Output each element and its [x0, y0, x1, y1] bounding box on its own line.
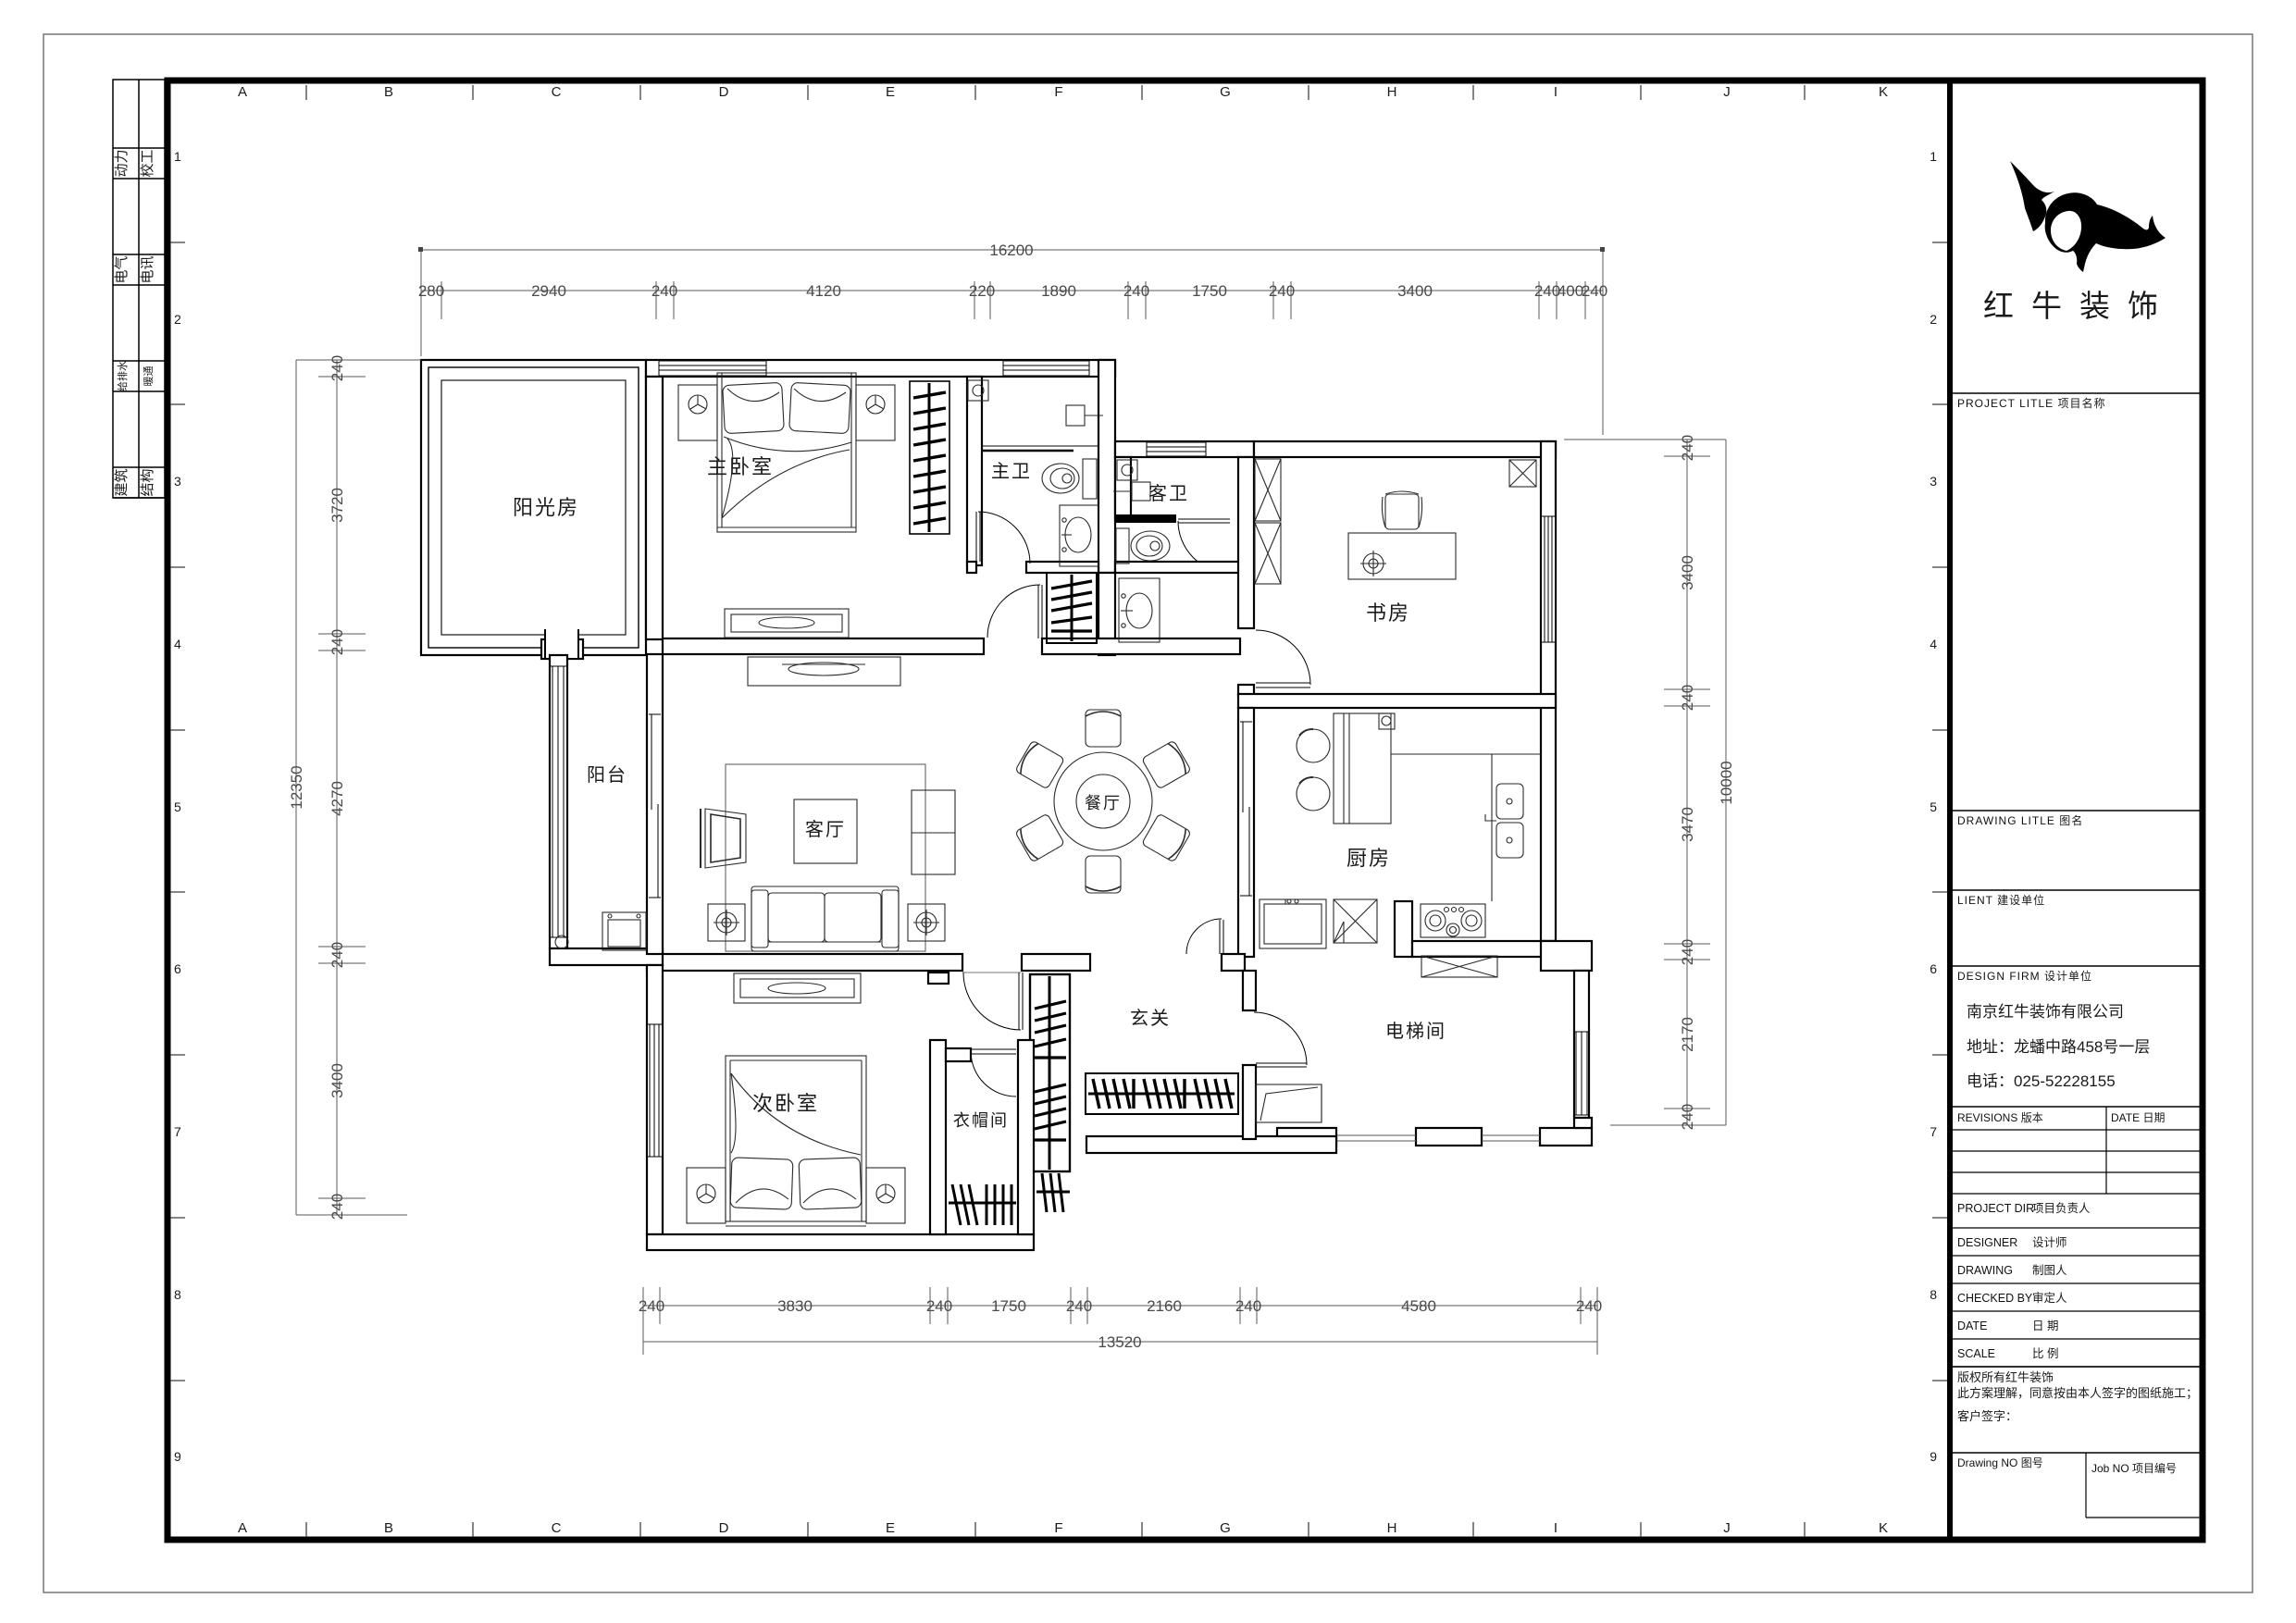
svg-text:240: 240 — [1123, 282, 1149, 300]
svg-text:客卫: 客卫 — [1148, 483, 1189, 504]
svg-text:REVISIONS 版本: REVISIONS 版本 — [1957, 1111, 2043, 1124]
svg-text:3400: 3400 — [329, 1063, 346, 1098]
svg-text:9: 9 — [174, 1449, 181, 1464]
svg-text:阳光房: 阳光房 — [513, 496, 579, 519]
svg-text:I: I — [1554, 84, 1558, 100]
svg-text:校工: 校工 — [140, 149, 155, 177]
svg-text:建筑: 建筑 — [114, 468, 130, 496]
svg-text:2170: 2170 — [1679, 1017, 1696, 1052]
svg-text:主卫: 主卫 — [991, 461, 1032, 482]
svg-text:3830: 3830 — [777, 1297, 813, 1315]
svg-text:DESIGN FIRM 设计单位: DESIGN FIRM 设计单位 — [1957, 969, 2092, 983]
svg-text:C: C — [552, 1520, 562, 1536]
svg-text:D: D — [719, 84, 729, 100]
svg-text:3: 3 — [174, 474, 181, 489]
svg-text:DRAWING LITLE 图名: DRAWING LITLE 图名 — [1957, 813, 2083, 827]
svg-text:240: 240 — [1066, 1297, 1092, 1315]
svg-text:LIENT 建设单位: LIENT 建设单位 — [1957, 893, 2045, 907]
svg-text:阳台: 阳台 — [587, 764, 627, 786]
svg-text:8: 8 — [174, 1287, 181, 1302]
svg-text:9: 9 — [1930, 1449, 1937, 1464]
svg-text:A: A — [238, 1520, 247, 1536]
svg-text:4120: 4120 — [806, 282, 841, 300]
svg-text:H: H — [1387, 84, 1397, 100]
svg-text:此方案理解，同意按由本人签字的图纸施工；: 此方案理解，同意按由本人签字的图纸施工； — [1957, 1386, 2198, 1401]
svg-text:4: 4 — [174, 637, 181, 651]
svg-text:240: 240 — [1679, 435, 1696, 461]
svg-text:G: G — [1220, 1520, 1231, 1536]
svg-text:240: 240 — [926, 1297, 952, 1315]
svg-text:1890: 1890 — [1041, 282, 1076, 300]
svg-text:暖通: 暖通 — [143, 366, 155, 387]
svg-text:CHECKED BY: CHECKED BY — [1957, 1292, 2033, 1305]
svg-text:Drawing NO 图号: Drawing NO 图号 — [1957, 1456, 2043, 1469]
svg-text:设计师: 设计师 — [2032, 1235, 2067, 1249]
svg-text:240: 240 — [1679, 1104, 1696, 1130]
svg-text:客厅: 客厅 — [805, 819, 846, 840]
svg-text:餐厅: 餐厅 — [1085, 794, 1122, 812]
svg-text:240: 240 — [1576, 1297, 1602, 1315]
svg-text:制图人: 制图人 — [2032, 1264, 2067, 1277]
svg-text:5: 5 — [1930, 799, 1937, 814]
svg-text:B: B — [384, 84, 393, 100]
svg-text:电话：025-52228155: 电话：025-52228155 — [1967, 1072, 2116, 1090]
svg-text:结构: 结构 — [140, 468, 155, 496]
svg-text:给排水: 给排水 — [116, 361, 129, 391]
svg-text:240: 240 — [1679, 685, 1696, 711]
svg-text:240: 240 — [1582, 282, 1607, 300]
svg-text:3470: 3470 — [1679, 807, 1696, 842]
svg-text:书房: 书房 — [1366, 601, 1410, 625]
svg-text:电气: 电气 — [114, 255, 130, 283]
svg-text:C: C — [552, 84, 562, 100]
svg-text:动力: 动力 — [114, 149, 130, 177]
svg-text:2160: 2160 — [1147, 1297, 1182, 1315]
svg-text:2: 2 — [1930, 312, 1937, 327]
svg-text:K: K — [1879, 1520, 1888, 1536]
svg-text:8: 8 — [1930, 1287, 1937, 1302]
svg-text:1: 1 — [1930, 149, 1937, 164]
svg-text:240: 240 — [1235, 1297, 1261, 1315]
svg-text:主卧室: 主卧室 — [707, 455, 774, 478]
svg-text:H: H — [1387, 1520, 1397, 1536]
svg-text:E: E — [886, 84, 895, 100]
svg-text:240: 240 — [1679, 939, 1696, 965]
svg-text:Job NO 项目编号: Job NO 项目编号 — [2091, 1461, 2177, 1475]
svg-text:K: K — [1879, 84, 1888, 100]
svg-text:F: F — [1054, 84, 1062, 100]
svg-text:DESIGNER: DESIGNER — [1957, 1236, 2017, 1249]
svg-text:220: 220 — [969, 282, 995, 300]
svg-text:12350: 12350 — [288, 765, 305, 809]
svg-text:D: D — [719, 1520, 729, 1536]
svg-text:240: 240 — [329, 629, 346, 655]
svg-text:J: J — [1723, 1520, 1731, 1536]
svg-text:B: B — [384, 1520, 393, 1536]
svg-text:2: 2 — [174, 312, 181, 327]
svg-text:PROJECT DIR: PROJECT DIR — [1957, 1202, 2034, 1215]
svg-text:400: 400 — [1558, 282, 1583, 300]
svg-text:3: 3 — [1930, 474, 1937, 489]
svg-text:项目负责人: 项目负责人 — [2032, 1202, 2091, 1215]
svg-text:1: 1 — [174, 149, 181, 164]
svg-text:A: A — [238, 84, 247, 100]
svg-text:1750: 1750 — [991, 1297, 1026, 1315]
svg-text:F: F — [1054, 1520, 1062, 1536]
svg-text:厨房: 厨房 — [1347, 847, 1391, 870]
svg-text:客户签字：: 客户签字： — [1957, 1409, 2017, 1423]
svg-text:13520: 13520 — [1098, 1333, 1141, 1351]
svg-text:240: 240 — [1269, 282, 1295, 300]
svg-text:红牛装饰: 红牛装饰 — [1983, 289, 2176, 323]
svg-text:衣帽间: 衣帽间 — [953, 1111, 1009, 1130]
svg-text:E: E — [886, 1520, 895, 1536]
svg-text:240: 240 — [652, 282, 677, 300]
svg-text:16200: 16200 — [989, 242, 1033, 259]
svg-text:审定人: 审定人 — [2032, 1291, 2067, 1305]
svg-text:版权所有红牛装饰: 版权所有红牛装饰 — [1957, 1370, 2054, 1384]
svg-text:DATE: DATE — [1957, 1319, 1987, 1332]
svg-text:4270: 4270 — [329, 781, 346, 816]
svg-text:280: 280 — [418, 282, 444, 300]
svg-text:G: G — [1220, 84, 1231, 100]
svg-text:2940: 2940 — [531, 282, 566, 300]
svg-text:I: I — [1554, 1520, 1558, 1536]
svg-text:240: 240 — [329, 942, 346, 968]
svg-text:3720: 3720 — [329, 488, 346, 523]
svg-text:玄关: 玄关 — [1130, 1008, 1171, 1029]
svg-text:南京红牛装饰有限公司: 南京红牛装饰有限公司 — [1967, 1003, 2124, 1021]
svg-text:日 期: 日 期 — [2032, 1319, 2058, 1332]
svg-text:10000: 10000 — [1718, 761, 1735, 804]
svg-text:3400: 3400 — [1679, 555, 1696, 590]
svg-text:J: J — [1723, 84, 1731, 100]
svg-text:7: 7 — [1930, 1124, 1937, 1139]
svg-text:PROJECT LITLE 项目名称: PROJECT LITLE 项目名称 — [1957, 396, 2106, 410]
svg-text:6: 6 — [174, 961, 181, 976]
svg-text:1750: 1750 — [1192, 282, 1227, 300]
svg-text:240: 240 — [329, 1194, 346, 1220]
svg-text:3400: 3400 — [1397, 282, 1433, 300]
svg-text:5: 5 — [174, 799, 181, 814]
svg-text:240: 240 — [639, 1297, 664, 1315]
svg-text:地址：龙蟠中路458号一层: 地址：龙蟠中路458号一层 — [1967, 1038, 2150, 1056]
svg-text:SCALE: SCALE — [1957, 1347, 1995, 1360]
svg-text:电讯: 电讯 — [140, 255, 155, 283]
svg-text:比 例: 比 例 — [2032, 1347, 2058, 1360]
svg-text:DRAWING: DRAWING — [1957, 1264, 2013, 1277]
svg-text:次卧室: 次卧室 — [752, 1092, 819, 1115]
svg-text:DATE 日期: DATE 日期 — [2111, 1111, 2165, 1124]
svg-text:4580: 4580 — [1401, 1297, 1436, 1315]
svg-text:电梯间: 电梯间 — [1385, 1021, 1446, 1042]
svg-text:6: 6 — [1930, 961, 1937, 976]
svg-text:4: 4 — [1930, 637, 1937, 651]
svg-text:240: 240 — [329, 355, 346, 381]
svg-text:7: 7 — [174, 1124, 181, 1139]
